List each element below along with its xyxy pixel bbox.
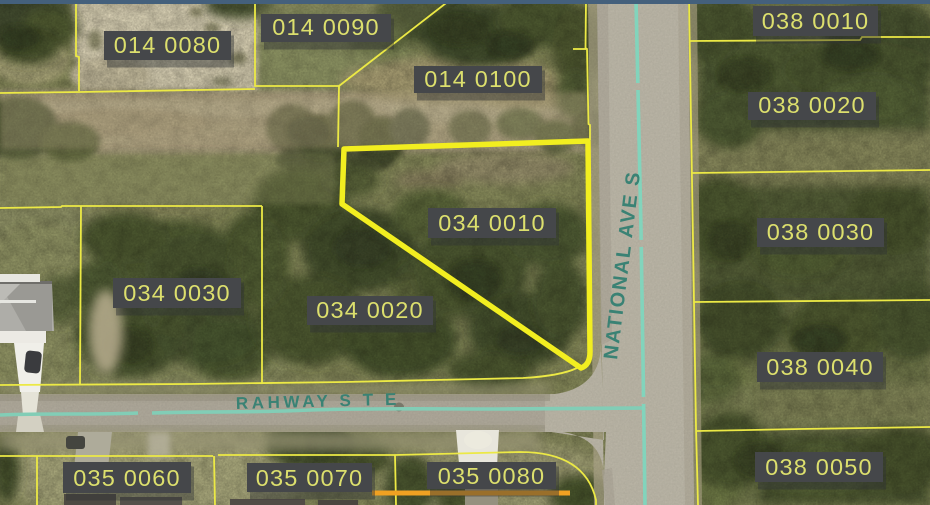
svg-text:034 0030: 034 0030 bbox=[123, 280, 231, 306]
svg-text:035 0070: 035 0070 bbox=[256, 465, 364, 491]
svg-text:038 0040: 038 0040 bbox=[766, 354, 874, 380]
svg-text:034 0020: 034 0020 bbox=[316, 297, 424, 323]
svg-text:038 0020: 038 0020 bbox=[758, 92, 866, 118]
svg-text:034 0010: 034 0010 bbox=[438, 210, 546, 236]
svg-text:014 0090: 014 0090 bbox=[272, 14, 380, 40]
svg-text:014 0080: 014 0080 bbox=[114, 32, 222, 58]
svg-text:035 0080: 035 0080 bbox=[438, 463, 546, 489]
svg-text:038 0030: 038 0030 bbox=[767, 219, 875, 245]
svg-text:035 0060: 035 0060 bbox=[73, 465, 181, 491]
svg-text:038 0050: 038 0050 bbox=[765, 454, 873, 480]
svg-text:014 0100: 014 0100 bbox=[424, 66, 532, 92]
svg-text:038 0010: 038 0010 bbox=[762, 8, 870, 34]
